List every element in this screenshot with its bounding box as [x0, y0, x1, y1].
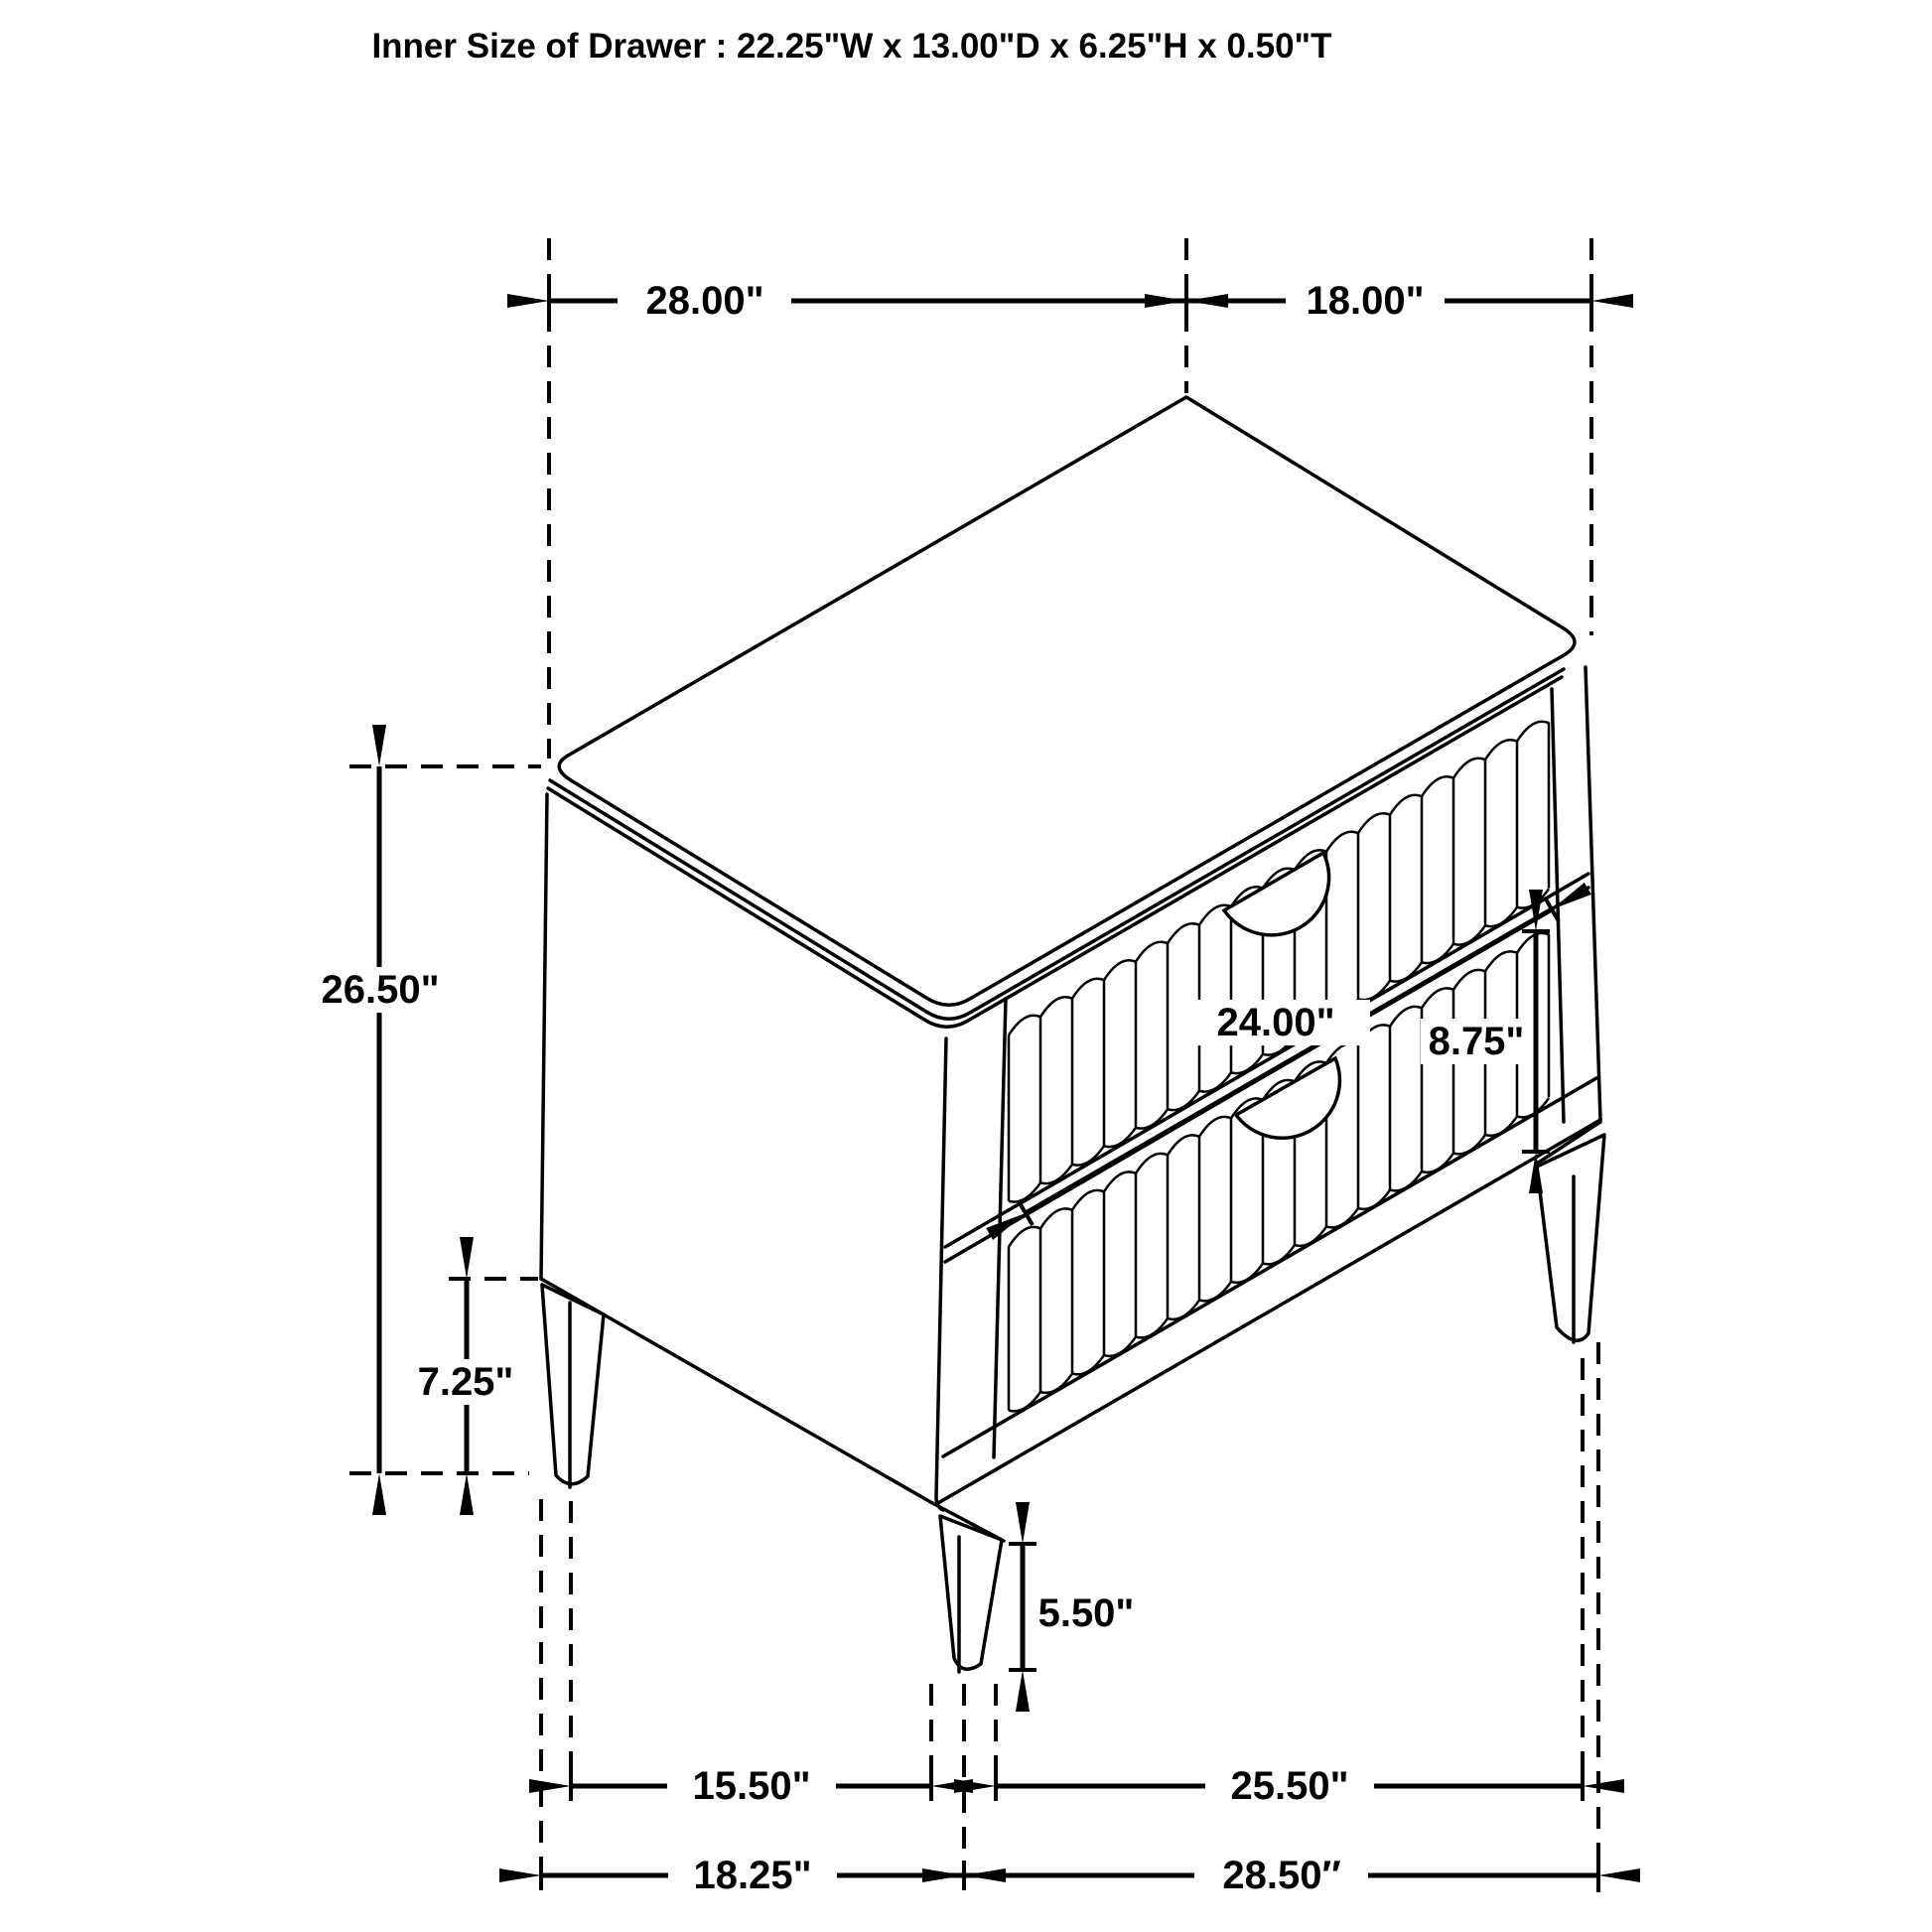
dimension-label: 28.00" — [645, 279, 763, 323]
dim-leg-span-front-inner: 25.50" — [996, 1763, 1583, 1809]
dim-back-leg-height: 7.25" — [391, 1279, 540, 1473]
dimension-label: 5.50" — [1038, 1591, 1135, 1635]
technical-drawing: Inner Size of Drawer : 22.25"W x 13.00"D… — [0, 0, 1932, 1932]
dim-base-width-overall: 28.50″ — [964, 1853, 1598, 1898]
dim-leg-span-side-inner: 15.50" — [571, 1763, 931, 1809]
dim-top-depth: 18.00" — [1186, 278, 1591, 324]
extension-lines — [349, 238, 1598, 1892]
dimension-label: 25.50" — [1230, 1764, 1348, 1808]
drawing-page: Inner Size of Drawer : 22.25"W x 13.00"D… — [0, 0, 1932, 1932]
dim-base-depth-overall: 18.25" — [541, 1853, 964, 1898]
dim-front-leg-height: 5.50" — [1009, 1544, 1134, 1670]
dimension-label: 18.00" — [1306, 279, 1424, 323]
dimension-label: 28.50″ — [1222, 1854, 1340, 1897]
dim-top-width: 28.00" — [549, 278, 1186, 324]
dimension-label: 18.25" — [693, 1854, 811, 1897]
drawing-title: Inner Size of Drawer : 22.25"W x 13.00"D… — [371, 27, 1331, 66]
dimension-label: 7.25" — [418, 1360, 514, 1404]
dimension-label: 8.75" — [1429, 1020, 1525, 1063]
dimension-label: 26.50" — [321, 968, 439, 1012]
dimension-label: 24.00" — [1216, 1001, 1334, 1044]
dimension-label: 15.50" — [692, 1764, 810, 1808]
